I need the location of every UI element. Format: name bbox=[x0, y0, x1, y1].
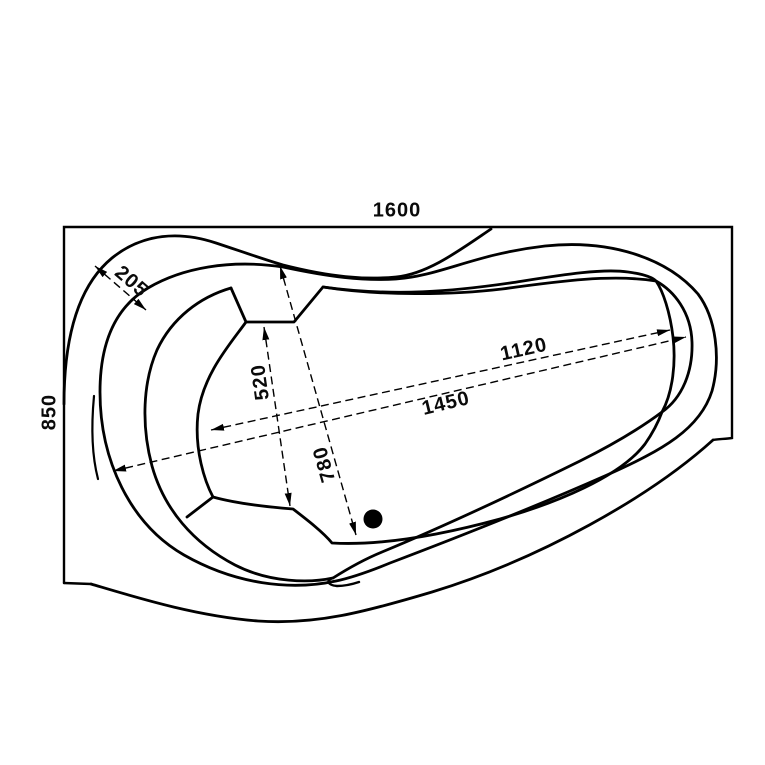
dimension-lines bbox=[95, 266, 686, 535]
bathtub-top-view-drawing bbox=[0, 0, 765, 765]
seat-left-crease bbox=[187, 497, 213, 517]
dim-label-overall-depth: 850 bbox=[39, 394, 62, 430]
rim-inner-edge-right bbox=[323, 271, 692, 578]
tub-outer-edge bbox=[64, 229, 491, 404]
rim-ledge-line bbox=[92, 396, 98, 479]
headrest-left-crease bbox=[231, 288, 246, 322]
bathtub-technical-drawing-page: 1600 850 205 520 780 1120 1450 bbox=[0, 0, 765, 765]
drain-icon bbox=[364, 510, 383, 529]
dim-label-headrest-to-seat: 520 bbox=[247, 362, 275, 401]
dim-label-overall-width: 1600 bbox=[373, 200, 422, 223]
dim-line-780 bbox=[280, 266, 356, 535]
dim-line-520 bbox=[264, 327, 290, 506]
